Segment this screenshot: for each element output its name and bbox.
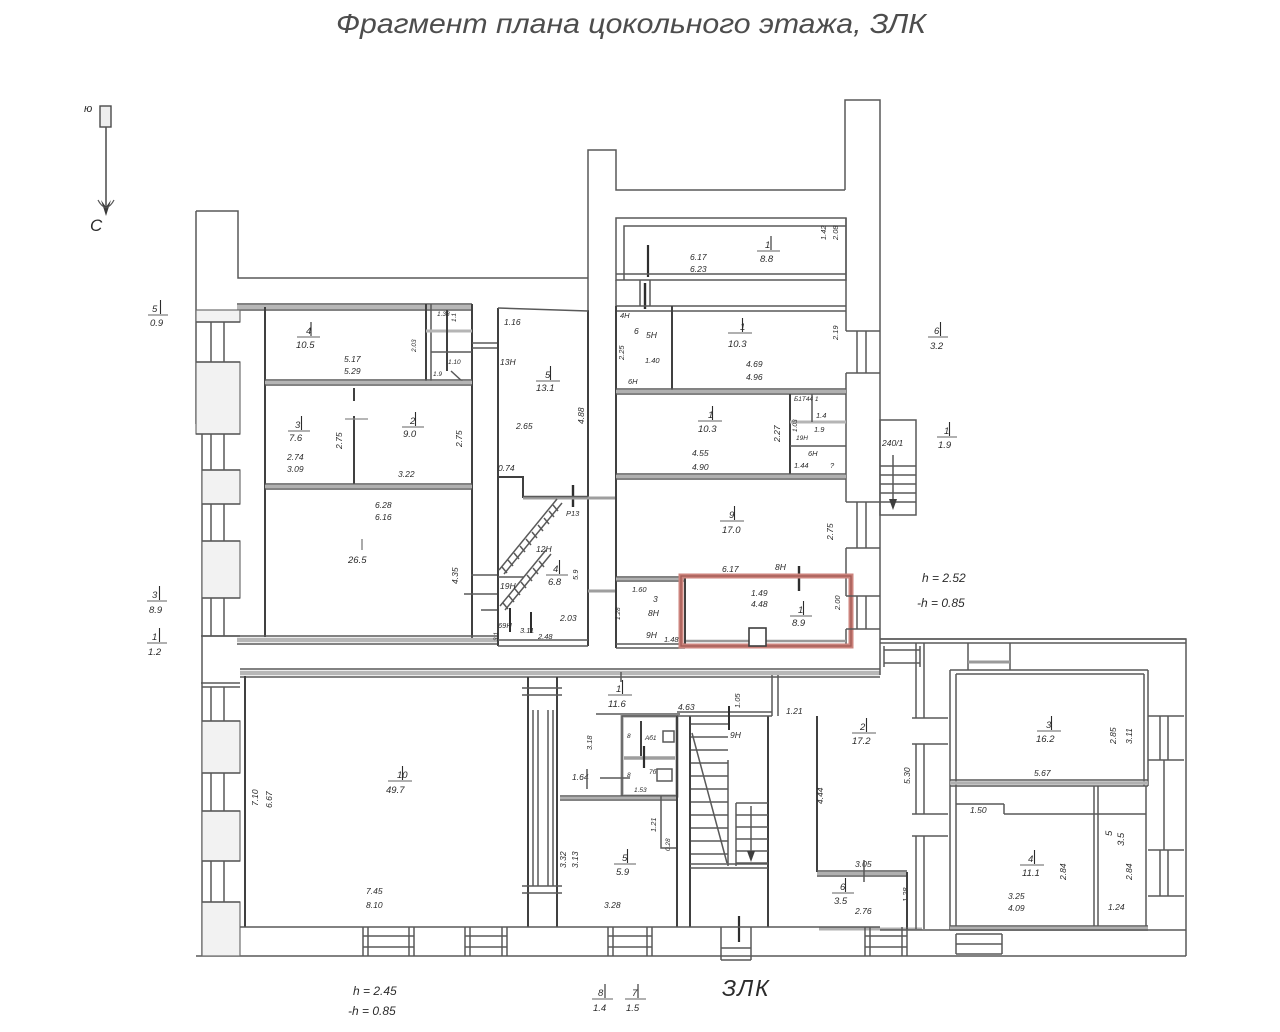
svg-text:1.9: 1.9: [433, 371, 442, 378]
svg-text:2.00: 2.00: [833, 595, 842, 611]
svg-text:3.13: 3.13: [570, 851, 580, 868]
svg-text:1.42: 1.42: [819, 225, 828, 240]
svg-text:1.21: 1.21: [649, 817, 658, 832]
svg-text:1.24: 1.24: [1108, 902, 1125, 912]
svg-text:11.1: 11.1: [1022, 868, 1040, 879]
svg-text:1.9: 1.9: [938, 440, 952, 451]
svg-text:19Н: 19Н: [500, 581, 516, 591]
svg-text:8.8: 8.8: [760, 254, 774, 265]
svg-text:17.0: 17.0: [722, 525, 741, 536]
svg-text:4.09: 4.09: [1008, 903, 1025, 913]
svg-text:1: 1: [152, 632, 157, 643]
svg-text:1.2: 1.2: [148, 647, 162, 658]
svg-text:1.44: 1.44: [794, 461, 809, 470]
svg-text:Б1Т44 1: Б1Т44 1: [794, 396, 819, 403]
svg-text:3: 3: [653, 594, 658, 604]
svg-text:1.48: 1.48: [664, 635, 679, 644]
svg-text:0.9: 0.9: [150, 318, 164, 329]
svg-text:5.17: 5.17: [344, 354, 361, 364]
svg-text:11.6: 11.6: [608, 699, 627, 710]
svg-text:4Н: 4Н: [620, 311, 630, 320]
svg-text:1: 1: [944, 426, 949, 437]
svg-text:1.1: 1.1: [451, 313, 458, 322]
svg-text:6.17: 6.17: [690, 252, 707, 262]
svg-text:2: 2: [859, 722, 866, 733]
svg-text:4.44: 4.44: [815, 787, 825, 804]
svg-text:3.18: 3.18: [585, 735, 594, 750]
svg-text:ЗЛК: ЗЛК: [722, 975, 771, 1001]
svg-text:4.88: 4.88: [576, 407, 586, 424]
svg-text:-h = 0.85: -h = 0.85: [917, 596, 965, 610]
svg-text:2.25: 2.25: [617, 345, 626, 361]
svg-text:1.50: 1.50: [970, 805, 987, 815]
svg-text:10.3: 10.3: [728, 339, 747, 350]
svg-text:1.10: 1.10: [448, 359, 461, 366]
svg-text:4.90: 4.90: [692, 462, 709, 472]
svg-text:8: 8: [627, 733, 631, 740]
svg-text:13Н: 13Н: [500, 357, 516, 367]
svg-text:4: 4: [1028, 854, 1033, 865]
svg-text:1.5: 1.5: [626, 1003, 640, 1014]
svg-text:5.29: 5.29: [344, 366, 361, 376]
svg-text:5.9: 5.9: [571, 569, 580, 580]
svg-text:0.74: 0.74: [498, 463, 515, 473]
svg-text:8Н: 8Н: [648, 608, 660, 618]
svg-text:4.48: 4.48: [751, 599, 768, 609]
svg-text:7: 7: [632, 988, 638, 999]
svg-text:16.2: 16.2: [1036, 734, 1055, 745]
svg-text:1: 1: [616, 684, 621, 695]
svg-text:6.67: 6.67: [264, 791, 274, 808]
svg-text:2.27: 2.27: [772, 425, 782, 443]
svg-text:4.35: 4.35: [450, 567, 460, 584]
svg-text:1.53: 1.53: [634, 787, 647, 794]
svg-text:1.9: 1.9: [814, 425, 825, 434]
svg-text:6Н: 6Н: [628, 377, 638, 386]
svg-text:6.8: 6.8: [548, 577, 562, 588]
svg-text:3.5: 3.5: [834, 896, 848, 907]
svg-text:2.85: 2.85: [1108, 727, 1118, 745]
svg-text:1.40: 1.40: [645, 356, 660, 365]
svg-text:7.6: 7.6: [289, 433, 303, 444]
svg-text:1.05: 1.05: [733, 693, 742, 708]
svg-text:5: 5: [152, 304, 158, 315]
svg-text:8.9: 8.9: [149, 605, 163, 616]
svg-text:8.9: 8.9: [792, 618, 806, 629]
svg-text:7.45: 7.45: [366, 886, 383, 896]
svg-text:4.63: 4.63: [678, 702, 695, 712]
svg-text:240/1: 240/1: [881, 438, 904, 448]
svg-text:19Н: 19Н: [796, 435, 808, 442]
svg-text:3.11: 3.11: [1124, 728, 1134, 744]
svg-text:4.96: 4.96: [746, 372, 763, 382]
svg-text:8Н: 8Н: [775, 562, 787, 572]
svg-text:1.38: 1.38: [437, 311, 450, 318]
svg-text:6.23: 6.23: [690, 264, 707, 274]
svg-text:1.21: 1.21: [786, 706, 803, 716]
svg-text:5Н: 5Н: [646, 330, 658, 340]
svg-text:1.4: 1.4: [816, 411, 826, 420]
svg-text:h = 2.52: h = 2.52: [922, 571, 966, 585]
svg-text:2.19: 2.19: [831, 325, 840, 341]
svg-text:6.17: 6.17: [722, 564, 739, 574]
svg-text:1.60: 1.60: [632, 585, 647, 594]
svg-text:8: 8: [598, 988, 604, 999]
svg-text:4.69: 4.69: [746, 359, 763, 369]
svg-text:2.84: 2.84: [1124, 863, 1134, 881]
svg-text:2.08: 2.08: [831, 225, 840, 241]
svg-text:3.25: 3.25: [1008, 891, 1025, 901]
svg-text:10.5: 10.5: [296, 340, 315, 351]
svg-text:2.75: 2.75: [454, 430, 464, 448]
svg-text:1.16: 1.16: [504, 317, 521, 327]
svg-text:2.03: 2.03: [559, 613, 577, 623]
svg-text:1.03: 1.03: [792, 419, 799, 432]
svg-text:7.10: 7.10: [250, 789, 260, 806]
svg-text:6.28: 6.28: [375, 500, 392, 510]
svg-text:1.28: 1.28: [615, 607, 622, 620]
svg-text:2.76: 2.76: [854, 906, 872, 916]
svg-text:5.67: 5.67: [1034, 768, 1051, 778]
svg-text:-h = 0.85: -h = 0.85: [348, 1004, 396, 1018]
svg-text:9.0: 9.0: [403, 429, 417, 440]
svg-text:3.2: 3.2: [930, 341, 944, 352]
svg-text:2.84: 2.84: [1058, 863, 1068, 881]
svg-text:13.1: 13.1: [536, 383, 555, 394]
svg-text:3: 3: [152, 590, 158, 601]
svg-text:1: 1: [765, 240, 770, 251]
svg-text:2.65: 2.65: [515, 421, 533, 431]
svg-text:2.74: 2.74: [286, 452, 304, 462]
svg-text:1.4: 1.4: [593, 1003, 606, 1014]
svg-text:0.28: 0.28: [665, 838, 672, 851]
svg-text:2.75: 2.75: [334, 432, 344, 450]
svg-text:3.22: 3.22: [398, 469, 415, 479]
svg-text:49.7: 49.7: [386, 785, 405, 796]
svg-text:3: 3: [295, 420, 301, 431]
svg-text:1.49: 1.49: [751, 588, 768, 598]
svg-text:3.1: 3.1: [493, 632, 500, 641]
svg-text:Аб1: Аб1: [644, 734, 657, 742]
svg-text:2.75: 2.75: [825, 523, 835, 541]
svg-text:5.30: 5.30: [902, 767, 912, 784]
svg-text:17.2: 17.2: [852, 736, 871, 747]
svg-text:3.28: 3.28: [604, 900, 621, 910]
svg-text:2.03: 2.03: [411, 339, 418, 353]
svg-text:h = 2.45: h = 2.45: [353, 984, 397, 998]
svg-text:1: 1: [798, 605, 803, 616]
svg-text:3.32: 3.32: [558, 851, 568, 868]
svg-text:Фрагмент плана цокольного эта: Фрагмент плана цокольного этажа, ЗЛК: [336, 8, 928, 39]
svg-text:1.28: 1.28: [901, 887, 910, 902]
svg-text:С: С: [90, 216, 103, 235]
svg-text:9Н: 9Н: [646, 630, 658, 640]
svg-text:3.09: 3.09: [287, 464, 304, 474]
svg-text:6.16: 6.16: [375, 512, 392, 522]
svg-text:Р13: Р13: [566, 509, 580, 518]
svg-text:6: 6: [934, 326, 940, 337]
svg-text:10.3: 10.3: [698, 424, 717, 435]
svg-text:6Н: 6Н: [808, 449, 818, 458]
svg-text:9Н: 9Н: [730, 730, 742, 740]
svg-text:ю: ю: [84, 103, 92, 115]
svg-text:3.5: 3.5: [1116, 832, 1127, 846]
svg-text:26.5: 26.5: [347, 555, 367, 566]
svg-text:4.55: 4.55: [692, 448, 709, 458]
svg-text:5: 5: [1104, 830, 1115, 836]
svg-text:6: 6: [634, 326, 639, 336]
svg-text:4: 4: [553, 564, 558, 575]
svg-text:5.9: 5.9: [616, 867, 630, 878]
svg-text:12Н: 12Н: [536, 544, 552, 554]
svg-text:8.10: 8.10: [366, 900, 383, 910]
svg-text:7б: 7б: [649, 768, 657, 776]
svg-text:2.48: 2.48: [537, 632, 553, 641]
